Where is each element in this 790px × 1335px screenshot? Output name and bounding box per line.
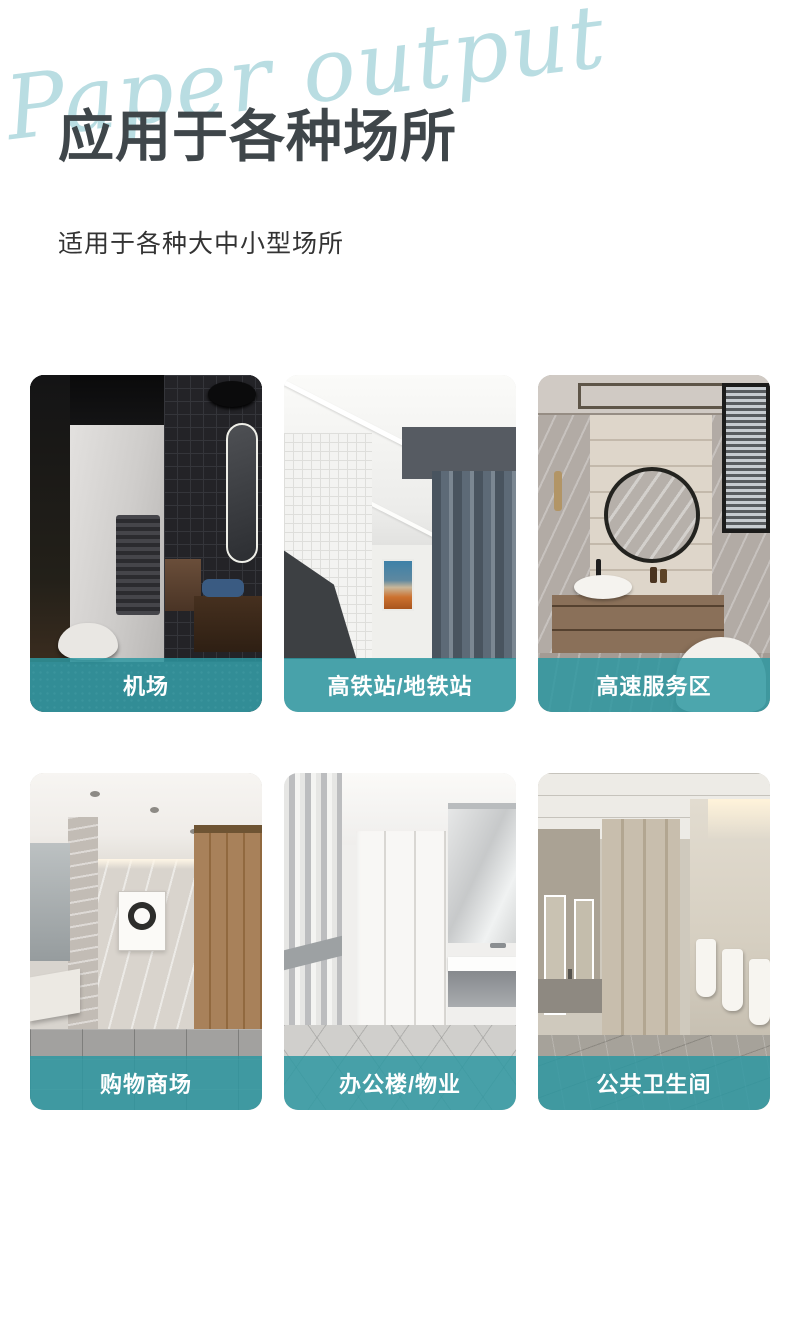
- scene-label: 高速服务区: [596, 669, 711, 701]
- scene-card-rail-station: 高铁站/地铁站: [284, 375, 516, 712]
- wall-sconce: [554, 471, 562, 511]
- section-subtitle: 适用于各种大中小型场所: [58, 224, 344, 260]
- wall-hung-toilet: [58, 623, 118, 660]
- stall-doors: [356, 831, 448, 1045]
- towel-radiator: [116, 515, 160, 615]
- blue-vessel-sink: [202, 579, 244, 597]
- scene-card-service-area: 高速服务区: [538, 375, 770, 712]
- stall-doors: [602, 819, 680, 1053]
- scene-card-public-restroom: 公共卫生间: [538, 773, 770, 1110]
- scene-label: 公共卫生间: [596, 1067, 711, 1099]
- wall-art-enso-circle: [118, 891, 166, 951]
- stone-counter: [538, 979, 602, 1013]
- recessed-light: [90, 791, 100, 797]
- scene-card-airport: 机场: [30, 375, 262, 712]
- toiletry-bottle: [650, 567, 657, 583]
- ceiling-frame: [578, 383, 728, 409]
- scene-card-grid: 机场 高铁站/地铁站: [30, 375, 770, 1110]
- scene-card-office: 办公楼/物业: [284, 773, 516, 1110]
- stall-header-panel: [194, 825, 262, 833]
- art-ring: [125, 899, 159, 933]
- cove-light: [708, 799, 770, 839]
- scene-label-banner: 机场: [30, 658, 262, 712]
- capsule-mirror: [226, 423, 258, 563]
- scene-label: 高铁站/地铁站: [327, 669, 472, 701]
- faucet: [490, 943, 506, 948]
- rain-shower-head: [208, 381, 256, 407]
- scene-label-banner: 购物商场: [30, 1056, 262, 1110]
- product-detail-section: Paper output 应用于各种场所 适用于各种大中小型场所 机场: [0, 0, 790, 1335]
- mirror-wall: [448, 809, 516, 943]
- recessed-light: [150, 807, 159, 813]
- urinal: [749, 959, 770, 1025]
- counter-underside: [448, 971, 516, 1007]
- vanity-cabinet: [194, 596, 262, 652]
- scene-label-banner: 高铁站/地铁站: [284, 658, 516, 712]
- scene-label-banner: 公共卫生间: [538, 1056, 770, 1110]
- window-with-blinds: [722, 383, 770, 533]
- toiletry-bottle: [660, 569, 667, 583]
- scene-label-banner: 办公楼/物业: [284, 1056, 516, 1110]
- wall-art: [382, 559, 414, 611]
- marble-counter: [30, 969, 80, 1022]
- section-title: 应用于各种场所: [58, 92, 457, 173]
- white-counter: [448, 957, 516, 971]
- scene-label: 购物商场: [100, 1067, 192, 1099]
- scene-label: 机场: [123, 669, 169, 701]
- cove-light: [85, 859, 200, 869]
- led-mirror-wall: [538, 829, 600, 979]
- urinal: [696, 939, 716, 997]
- round-mirror: [604, 467, 700, 563]
- vanity-mirror: [30, 843, 70, 961]
- scene-label-banner: 高速服务区: [538, 658, 770, 712]
- scene-left-wall: [30, 375, 70, 667]
- vessel-sink: [574, 575, 632, 599]
- scene-label: 办公楼/物业: [339, 1067, 461, 1099]
- stall-doors: [432, 471, 516, 667]
- urinal: [722, 949, 743, 1011]
- scene-card-shopping-mall: 购物商场: [30, 773, 262, 1110]
